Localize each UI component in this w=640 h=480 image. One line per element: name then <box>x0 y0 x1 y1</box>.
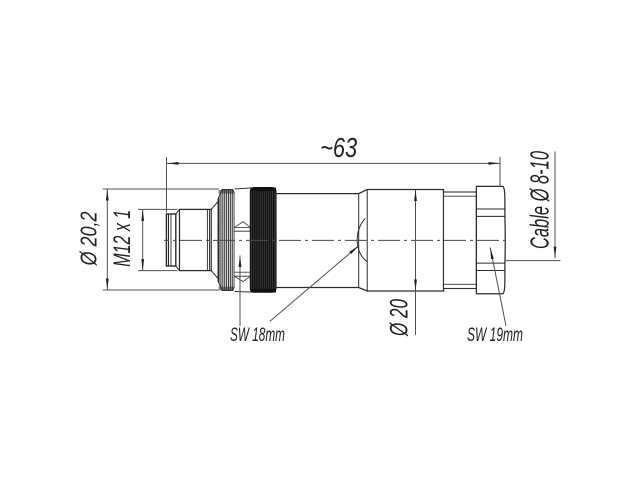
svg-text:Ø 20: Ø 20 <box>386 299 414 337</box>
svg-text:SW 18mm: SW 18mm <box>230 325 285 346</box>
svg-text:M12 x 1: M12 x 1 <box>109 210 136 267</box>
svg-text:Cable Ø 8-10: Cable Ø 8-10 <box>525 151 555 249</box>
svg-text:Ø 20,2: Ø 20,2 <box>76 211 102 266</box>
svg-text:~63: ~63 <box>320 132 358 163</box>
svg-text:SW 19mm: SW 19mm <box>467 325 523 346</box>
